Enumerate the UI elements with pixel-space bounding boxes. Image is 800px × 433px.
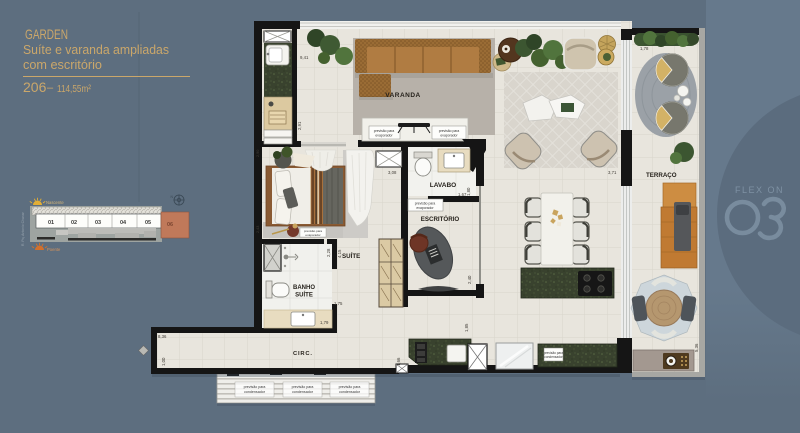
svg-text:previsão para: previsão para <box>374 129 395 133</box>
svg-text:1,79: 1,79 <box>320 320 329 325</box>
svg-text:1,00: 1,00 <box>161 357 166 366</box>
svg-text:previsão para: previsão para <box>339 385 361 389</box>
svg-text:5,36: 5,36 <box>694 343 699 352</box>
svg-text:LAVABO: LAVABO <box>430 182 456 189</box>
svg-text:2,40: 2,40 <box>467 275 472 284</box>
svg-text:2,43: 2,43 <box>256 226 260 233</box>
svg-text:8,36: 8,36 <box>158 334 167 339</box>
svg-text:FLEX ON: FLEX ON <box>735 185 784 195</box>
svg-text:114,55m²: 114,55m² <box>57 83 91 95</box>
svg-text:SUÍTE: SUÍTE <box>342 252 360 260</box>
svg-text:condensador: condensador <box>292 390 314 394</box>
svg-text:1,80: 1,80 <box>466 187 471 196</box>
svg-text:1,78: 1,78 <box>640 46 649 51</box>
svg-text:3,71: 3,71 <box>608 170 617 175</box>
svg-text:04: 04 <box>120 220 127 226</box>
svg-text:2,28: 2,28 <box>326 248 331 257</box>
svg-text:CIRC.: CIRC. <box>293 351 313 357</box>
svg-text:previsão para: previsão para <box>244 385 266 389</box>
svg-text:evaporador: evaporador <box>416 206 434 210</box>
svg-text:1,75: 1,75 <box>334 301 343 306</box>
svg-text:Nascente: Nascente <box>46 200 64 205</box>
svg-text:Suíte e varanda ampliadas: Suíte e varanda ampliadas <box>23 42 169 57</box>
svg-text:2,91: 2,91 <box>297 121 302 130</box>
svg-text:previsão para: previsão para <box>292 385 314 389</box>
svg-text:Poente: Poente <box>47 247 61 252</box>
svg-text:06: 06 <box>167 222 173 228</box>
svg-text:ESCRITÓRIO: ESCRITÓRIO <box>421 215 460 223</box>
svg-text:evaporador: evaporador <box>375 134 393 138</box>
svg-text:com escritório: com escritório <box>23 57 102 72</box>
svg-text:previsão para: previsão para <box>415 202 436 206</box>
svg-text:206: 206 <box>23 79 47 95</box>
svg-text:BANHO: BANHO <box>293 285 315 291</box>
svg-text:3,08: 3,08 <box>388 170 397 175</box>
svg-text:R. Pq. Antonio Chanar: R. Pq. Antonio Chanar <box>21 211 25 246</box>
svg-text:4,15: 4,15 <box>337 249 342 258</box>
svg-text:condensador: condensador <box>544 355 563 359</box>
svg-text:evaporador: evaporador <box>440 134 458 138</box>
svg-text:02: 02 <box>71 220 77 226</box>
svg-text:2,90: 2,90 <box>256 150 260 157</box>
svg-text:GARDEN: GARDEN <box>25 26 68 42</box>
svg-text:SUÍTE: SUÍTE <box>295 291 313 299</box>
svg-text:previsão para: previsão para <box>439 129 460 133</box>
svg-text:–: – <box>47 82 54 94</box>
svg-text:1,85: 1,85 <box>464 323 469 332</box>
svg-text:05: 05 <box>145 220 151 226</box>
svg-text:condensador: condensador <box>244 390 266 394</box>
svg-text:VARANDA: VARANDA <box>385 92 421 99</box>
svg-text:9,41: 9,41 <box>300 55 309 60</box>
svg-text:evaporador: evaporador <box>305 233 320 237</box>
svg-text:TERRAÇO: TERRAÇO <box>646 172 677 179</box>
svg-text:01: 01 <box>48 220 54 226</box>
svg-text:1,66: 1,66 <box>396 357 401 366</box>
svg-text:condensador: condensador <box>339 390 361 394</box>
svg-text:03: 03 <box>95 220 101 226</box>
